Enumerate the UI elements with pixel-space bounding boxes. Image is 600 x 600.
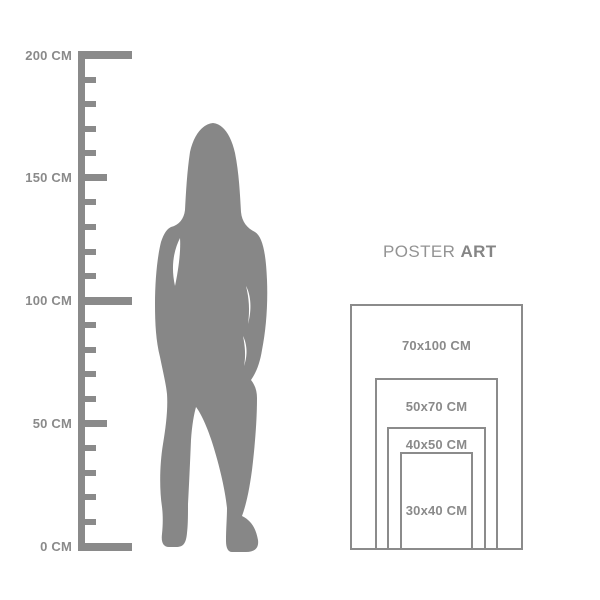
poster-size-label-50x70: 50x70 CM: [367, 399, 507, 414]
brand-title-poster: POSTER: [383, 242, 455, 261]
poster-rect-30x40: [400, 452, 474, 550]
woman-silhouette-shape: [155, 123, 267, 552]
poster-size-label-40x50: 40x50 CM: [367, 437, 507, 452]
size-guide-diagram: 200 CM150 CM100 CM50 CM0 CM 70x100 CM50x…: [0, 0, 600, 600]
poster-size-label-70x100: 70x100 CM: [367, 338, 507, 353]
poster-size-label-30x40: 30x40 CM: [367, 503, 507, 518]
brand-title-art: ART: [460, 242, 496, 261]
brand-title: POSTER ART: [383, 243, 497, 261]
